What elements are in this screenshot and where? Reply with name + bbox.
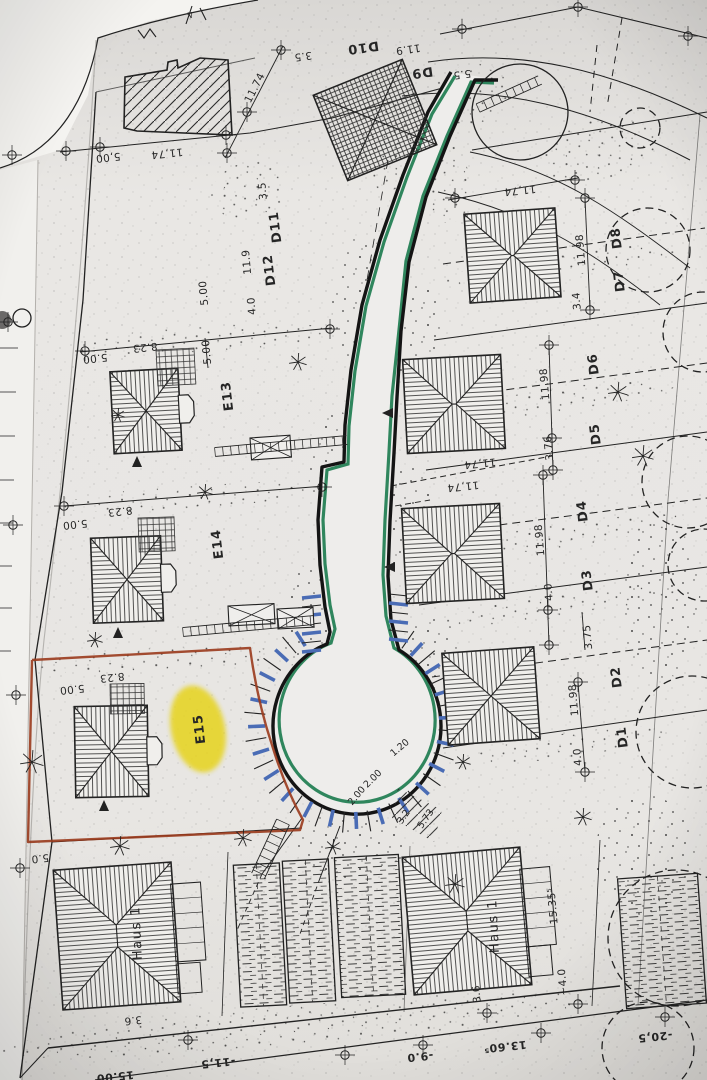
site-plan-photo: D10D9D11D12D8D7D6D5D4D3D2D1E13E14E15Haus… xyxy=(0,0,707,1080)
site-plan-drawing: D10D9D11D12D8D7D6D5D4D3D2D1E13E14E15Haus… xyxy=(0,0,707,1080)
photo-vignette xyxy=(0,0,707,1080)
